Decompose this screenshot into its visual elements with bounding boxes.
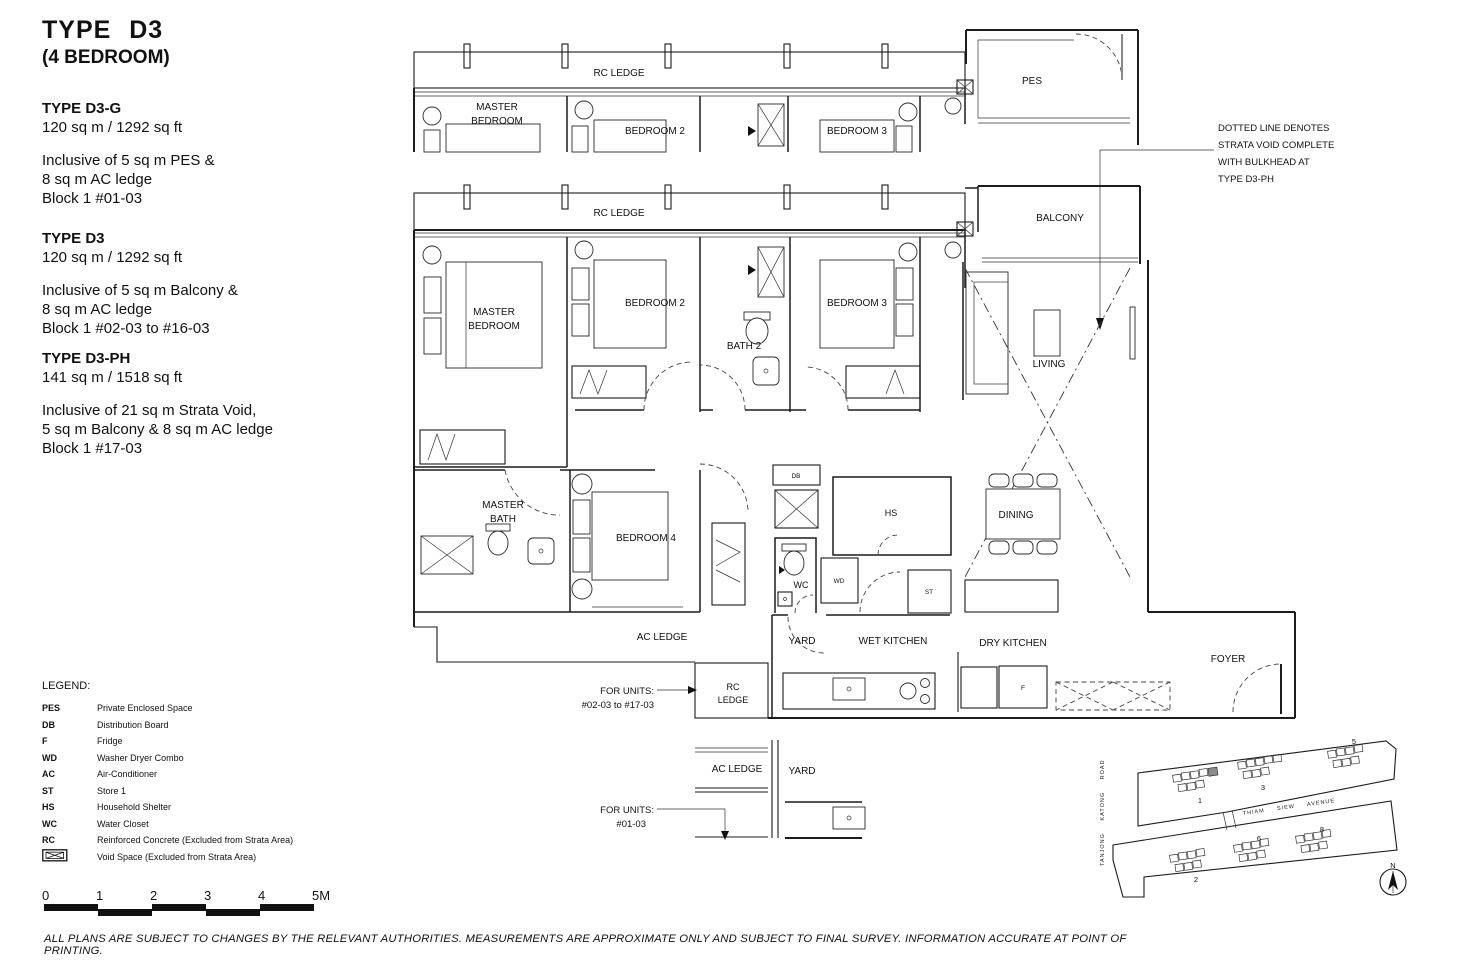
- legend-abbr: HS: [42, 802, 97, 812]
- label-dry-kitchen: DRY KITCHEN: [979, 638, 1046, 649]
- site-plan: THIAM SIEW AVENUE TANJONG KATONG ROAD 1 …: [1100, 737, 1406, 897]
- scale-segment: [44, 904, 98, 911]
- site-block-3: [1237, 754, 1283, 779]
- label-wc: WC: [794, 580, 809, 590]
- site-block-2: [1169, 848, 1206, 872]
- road-label-thiam-siew: THIAM SIEW AVENUE: [1242, 798, 1335, 817]
- label-yard: YARD: [788, 766, 815, 777]
- label-st: ST: [925, 589, 933, 596]
- variant-type-d3: TYPE D3 120 sq m / 1292 sq ft Inclusive …: [42, 229, 372, 338]
- label-rc-ledge: RC LEDGE: [593, 68, 644, 79]
- scale-tick: 4: [258, 888, 265, 903]
- label-dining: DINING: [999, 510, 1034, 521]
- scale-tick: 2: [150, 888, 157, 903]
- variant-line: Block 1 #17-03: [42, 439, 372, 458]
- site-block-label-1: 1: [1198, 796, 1202, 805]
- label-yard: YARD: [788, 636, 815, 647]
- legend-abbr: DB: [42, 720, 97, 730]
- legend: LEGEND: PESPrivate Enclosed Space DBDist…: [42, 680, 293, 865]
- label-ac-ledge: AC LEDGE: [712, 764, 763, 775]
- label-bedroom3: BEDROOM 3: [827, 298, 887, 309]
- title-block: TYPE D3 (4 BEDROOM): [42, 16, 170, 69]
- label-wd: WD: [834, 578, 845, 585]
- site-block-label-8: 8: [1320, 825, 1324, 834]
- label-living: LIVING: [1033, 359, 1066, 370]
- svg-text:BEDROOM: BEDROOM: [468, 321, 520, 332]
- floor-plan: RC LEDGE MASTER BEDROOM BEDROOM 2 BEDROO…: [400, 0, 1473, 966]
- label-rc-ledge: RC LEDGE: [593, 208, 644, 219]
- legend-abbr: ST: [42, 786, 97, 796]
- scale-tick: 3: [204, 888, 211, 903]
- label-foyer: FOYER: [1211, 654, 1245, 665]
- label-db: DB: [791, 473, 800, 480]
- site-block-6: [1233, 838, 1270, 862]
- scale-segment: [152, 904, 206, 911]
- legend-abbr: WD: [42, 753, 97, 763]
- variant-line: 8 sq m AC ledge: [42, 170, 372, 189]
- note-line: WITH BULKHEAD AT: [1218, 157, 1310, 168]
- compass-icon: N: [1380, 861, 1406, 895]
- label-master-bedroom: MASTER: [476, 102, 518, 113]
- site-block-label-5: 5: [1352, 737, 1356, 746]
- variant-name: TYPE D3: [42, 229, 372, 248]
- plan-fragment-top: RC LEDGE MASTER BEDROOM BEDROOM 2 BEDROO…: [414, 30, 1138, 152]
- legend-desc: Store 1: [97, 786, 126, 796]
- scale-tick: 1: [96, 888, 103, 903]
- legend-abbr: AC: [42, 769, 97, 779]
- variant-type-d3ph: TYPE D3-PH 141 sq m / 1518 sq ft Inclusi…: [42, 349, 372, 458]
- legend-desc: Washer Dryer Combo: [97, 753, 184, 763]
- site-block-1: [1172, 767, 1219, 792]
- legend-desc: Reinforced Concrete (Excluded from Strat…: [97, 835, 293, 845]
- legend-abbr: WC: [42, 819, 97, 829]
- legend-desc: Void Space (Excluded from Strata Area): [97, 852, 256, 862]
- variant-name: TYPE D3-G: [42, 99, 372, 118]
- variant-line: 5 sq m Balcony & 8 sq m AC ledge: [42, 420, 372, 439]
- scale-segment: [206, 909, 260, 916]
- variant-area: 141 sq m / 1518 sq ft: [42, 368, 372, 387]
- legend-title: LEGEND:: [42, 680, 293, 692]
- svg-text:#01-03: #01-03: [616, 819, 646, 830]
- page-subtitle: (4 BEDROOM): [42, 47, 170, 69]
- label-ac-ledge: AC LEDGE: [637, 632, 688, 643]
- variant-line: Inclusive of 21 sq m Strata Void,: [42, 401, 372, 420]
- legend-abbr: PES: [42, 703, 97, 713]
- site-block-8: [1295, 829, 1332, 853]
- label-bedroom3: BEDROOM 3: [827, 126, 887, 137]
- svg-text:#02-03 to #17-03: #02-03 to #17-03: [582, 700, 654, 711]
- highlighted-unit: [1208, 767, 1218, 776]
- variant-type-d3g: TYPE D3-G 120 sq m / 1292 sq ft Inclusiv…: [42, 99, 372, 208]
- variant-line: Inclusive of 5 sq m Balcony &: [42, 281, 372, 300]
- label-wet-kitchen: WET KITCHEN: [859, 636, 928, 647]
- label-balcony: BALCONY: [1036, 213, 1084, 224]
- legend-desc: Private Enclosed Space: [97, 703, 193, 713]
- variant-line: Inclusive of 5 sq m PES &: [42, 151, 372, 170]
- road-label-tanjong-katong: TANJONG KATONG ROAD: [1100, 759, 1106, 866]
- callout-units-ground: FOR UNITS:: [600, 805, 654, 816]
- scale-tick: 0: [42, 888, 49, 903]
- note-line: DOTTED LINE DENOTES: [1218, 123, 1329, 134]
- plan-fragment-bottom: AC LEDGE YARD FOR UNITS: #01-03: [600, 740, 865, 840]
- compass-north-label: N: [1390, 861, 1395, 870]
- variant-line: 8 sq m AC ledge: [42, 300, 372, 319]
- label-bedroom2: BEDROOM 2: [625, 126, 685, 137]
- label-master-bedroom: MASTER: [473, 307, 515, 318]
- variant-line: Block 1 #01-03: [42, 189, 372, 208]
- label-bedroom2: BEDROOM 2: [625, 298, 685, 309]
- void-space-icon: [42, 849, 97, 864]
- label-master-bath: MASTER: [482, 500, 524, 511]
- legend-desc: Distribution Board: [97, 720, 169, 730]
- label-bath2: BATH 2: [727, 341, 762, 352]
- scale-tick: 5M: [312, 888, 330, 903]
- site-block-label-3: 3: [1261, 783, 1265, 792]
- label-pes: PES: [1022, 76, 1042, 87]
- note-line: TYPE D3-PH: [1218, 174, 1274, 185]
- scale-segment: [260, 904, 314, 911]
- legend-desc: Fridge: [97, 736, 123, 746]
- legend-abbr: F: [42, 736, 97, 746]
- variant-area: 120 sq m / 1292 sq ft: [42, 248, 372, 267]
- variant-line: Block 1 #02-03 to #16-03: [42, 319, 372, 338]
- legend-desc: Household Shelter: [97, 802, 171, 812]
- svg-text:BEDROOM: BEDROOM: [471, 116, 523, 127]
- site-block-label-2: 2: [1194, 875, 1198, 884]
- variant-name: TYPE D3-PH: [42, 349, 372, 368]
- legend-desc: Water Closet: [97, 819, 149, 829]
- variant-area: 120 sq m / 1292 sq ft: [42, 118, 372, 137]
- callout-units-upper: FOR UNITS:: [600, 686, 654, 697]
- label-bedroom4: BEDROOM 4: [616, 533, 676, 544]
- legend-abbr: RC: [42, 835, 97, 845]
- label-hs: HS: [885, 508, 898, 518]
- plan-main: RC LEDGE: [414, 185, 1295, 718]
- scale-segment: [98, 909, 152, 916]
- legend-desc: Air-Conditioner: [97, 769, 157, 779]
- scale-bar: 0 1 2 3 4 5M: [40, 888, 350, 927]
- strata-void-note: DOTTED LINE DENOTES STRATA VOID COMPLETE…: [1096, 123, 1334, 330]
- label-fridge: F: [1021, 685, 1025, 692]
- svg-text:LEDGE: LEDGE: [718, 695, 749, 705]
- label-rc-ledge-box: RC: [727, 682, 740, 692]
- note-line: STRATA VOID COMPLETE: [1218, 140, 1334, 151]
- svg-text:BATH: BATH: [490, 514, 516, 525]
- page-title: TYPE D3: [42, 16, 170, 45]
- site-block-label-6: 6: [1257, 834, 1261, 843]
